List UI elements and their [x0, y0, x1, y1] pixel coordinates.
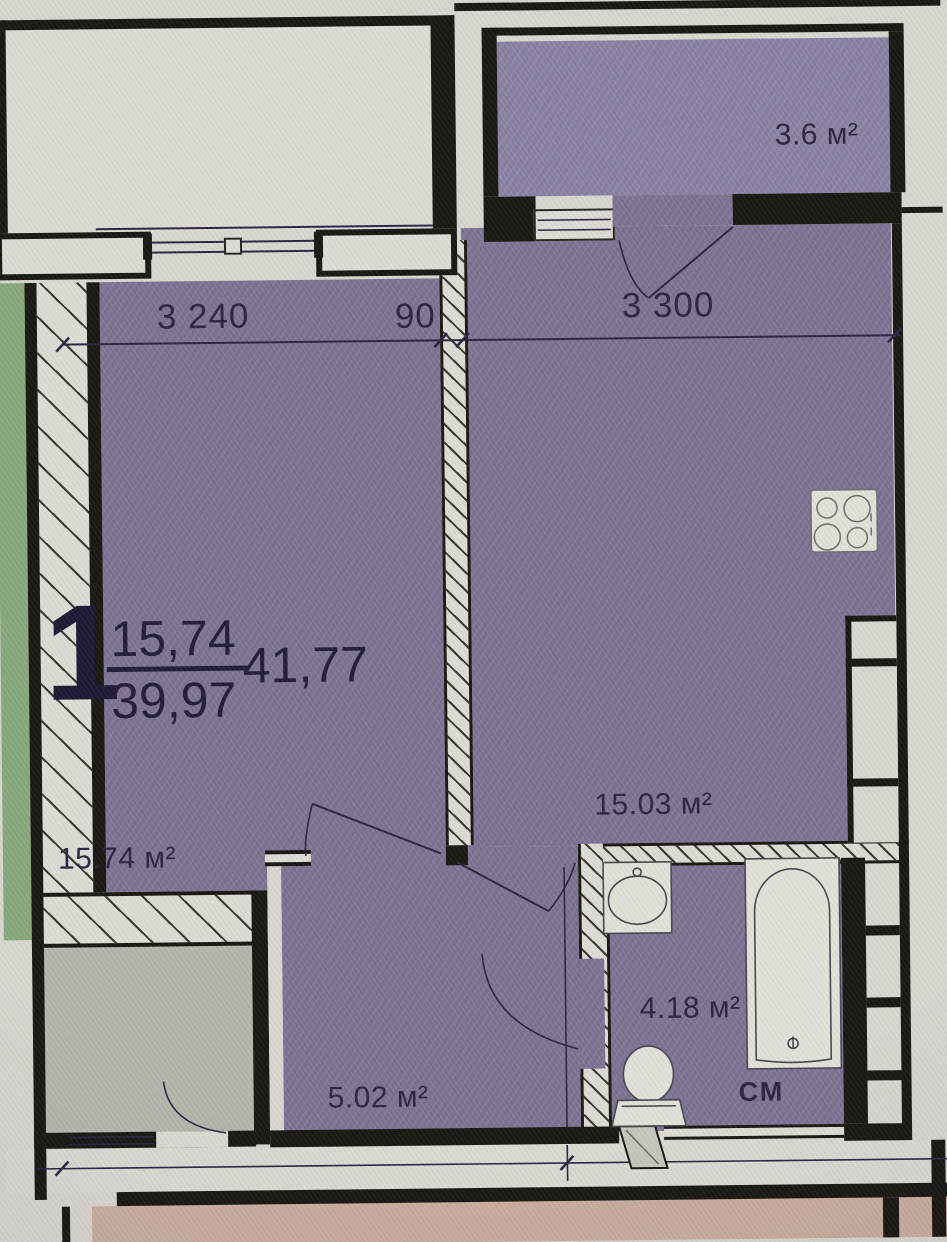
washing-machine-label: СМ [738, 1077, 784, 1109]
dimension-kitchen-width: 3 300 [621, 285, 714, 326]
living-room-door-swing [305, 802, 441, 856]
bathroom-area-label: 4.18 м² [640, 991, 741, 1026]
sink-icon [603, 862, 672, 934]
window-gray-room [70, 1137, 154, 1145]
stove-icon [811, 489, 878, 552]
dimension-left-room-width: 3 240 [157, 297, 250, 338]
kitchen-door-swing [457, 861, 576, 912]
toilet-icon [611, 1046, 686, 1127]
window-upper-room [96, 225, 433, 260]
living-area-value: 15,74 [110, 613, 236, 664]
overall-area-value: 41,77 [242, 639, 368, 690]
balcony-area-label: 3.6 м² [775, 118, 859, 153]
living-room-area-label: 15.74 м² [58, 841, 176, 876]
dimension-partition: 90 [395, 296, 436, 336]
floor-plan-photo: 3 240 90 3 300 3.6 м² 15.74 м² 15.03 м² … [0, 0, 947, 1242]
bathtub-icon [745, 858, 841, 1069]
floor-plan: 3 240 90 3 300 3.6 м² 15.74 м² 15.03 м² … [0, 0, 947, 1242]
window-kitchen [538, 219, 611, 230]
apartment-number: 1 [44, 584, 121, 721]
hallway-area-label: 5.02 м² [327, 1081, 428, 1116]
total-area-value: 39,97 [111, 675, 237, 726]
kitchen-area-label: 15.03 м² [594, 787, 712, 822]
gray-room-door-swing [163, 1081, 226, 1134]
bathroom-door-swing [482, 953, 578, 1050]
